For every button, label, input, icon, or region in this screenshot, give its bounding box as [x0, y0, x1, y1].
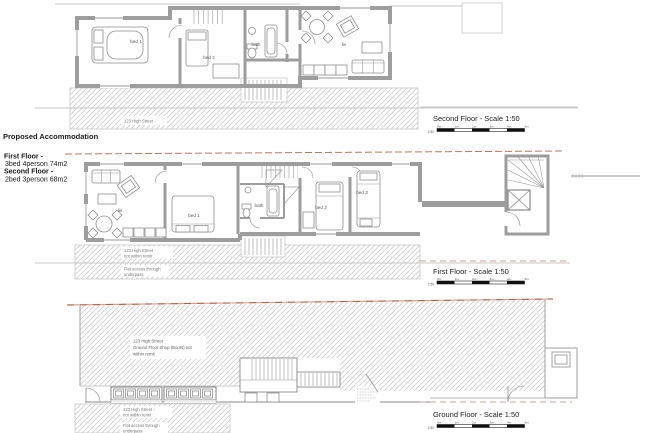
scale-tick-label: 4m [507, 421, 512, 425]
door-arc [86, 388, 100, 402]
scale-ratio-label: 1:50 [428, 283, 435, 287]
street-note: 123 High Street - [123, 407, 155, 412]
second-floor-scale: Second Floor - Scale 1:50 1:50 0m 1m 2m … [420, 107, 578, 134]
scale-tick-label: 5m [525, 421, 530, 425]
room-label-bed1: bed 1 [188, 213, 200, 218]
ground-floor-scale: Ground Floor - Scale 1:50 1:50 0m 1m 2m … [420, 402, 572, 430]
scale-tick-label: 1m [455, 277, 460, 281]
first-floor-label: First Floor - [4, 154, 44, 161]
room-label-liv: liv [342, 42, 347, 47]
bin-store-group [111, 387, 162, 404]
scale-bar [437, 129, 525, 132]
ground-stairs [240, 358, 340, 402]
shop-note-1: 123 High Street [133, 339, 164, 344]
living-furniture [88, 170, 166, 238]
scale-tick-label: 2m [472, 125, 477, 129]
stairwell [241, 78, 287, 102]
first-floor-spec: 3bed 4person 74m2 [5, 161, 67, 168]
stairwell [241, 236, 285, 257]
scale-bar [437, 425, 525, 428]
scale-tick-label: 4m [507, 277, 512, 281]
right-annex [545, 348, 577, 398]
second-floor-spec: 2bed 3person 68m2 [5, 177, 67, 184]
room-label-bath: bath [252, 42, 261, 47]
scale-tick-label: 2m [472, 421, 477, 425]
site-boundary-line [65, 151, 565, 154]
stair-arrow [284, 187, 299, 204]
plan-title: Second Floor - Scale 1:50 [433, 114, 520, 123]
drawing-sheet: 123 High Street - [0, 0, 650, 433]
bed1-furniture [92, 27, 148, 63]
bed2-furniture [186, 30, 239, 78]
shop-note-2: Ground Floor Shop (Boots) not [133, 345, 193, 350]
access-note-1: Flat access through [123, 423, 160, 428]
room-label-liv: liv [118, 208, 123, 213]
first-floor-plan: 123 High Street - not within remit Flat … [35, 151, 640, 279]
shop-note-3: within remit [133, 352, 156, 357]
scale-bar [437, 281, 525, 284]
room-label-bed3: bed 3 [356, 190, 368, 195]
bin-store-group [164, 387, 216, 404]
bathroom-fixtures [242, 186, 279, 218]
room-label-bath: bath [255, 203, 264, 208]
access-note-2: underpass [124, 272, 144, 277]
plan-title: First Floor - Scale 1:50 [433, 267, 509, 276]
bed3-furniture [357, 171, 380, 227]
shop-hatch-region [80, 358, 240, 386]
scale-tick-label: 1m [455, 125, 460, 129]
remit-note: not within remit [124, 254, 153, 259]
scale-tick-label: 0m [437, 421, 442, 425]
stairs-icon [194, 9, 222, 24]
street-note: 123 High Street - [124, 119, 156, 124]
remit-note: not within remit [123, 413, 152, 418]
first-floor-scale: First Floor - Scale 1:50 1:50 0m 1m 2m 3… [420, 261, 570, 287]
scale-tick-label: 2m [472, 277, 477, 281]
plan-title: Ground Floor - Scale 1:50 [433, 410, 519, 419]
scale-tick-label: 0m [437, 125, 442, 129]
room-label-bed1: bed 1 [130, 39, 142, 44]
scale-tick-label: 5m [525, 125, 530, 129]
floor-plan-drawing: 123 High Street - [0, 0, 650, 433]
room-label-bed2: bed 2 [315, 205, 327, 210]
scale-ratio-label: 1:50 [428, 130, 435, 134]
notes-heading: Proposed Accommodation [3, 132, 99, 141]
scale-tick-label: 3m [490, 277, 495, 281]
scale-tick-label: 3m [490, 421, 495, 425]
access-note-2: underpass [123, 429, 143, 433]
stairs-icon [262, 165, 298, 178]
reference-line [571, 174, 640, 179]
scale-tick-label: 4m [507, 125, 512, 129]
scale-tick-label: 5m [525, 277, 530, 281]
corridor-wall [422, 201, 508, 207]
scale-tick-label: 3m [490, 125, 495, 129]
scale-tick-label: 1m [455, 421, 460, 425]
scale-ratio-label: 1:50 [428, 426, 435, 430]
scale-tick-label: 0m [437, 277, 442, 281]
neighbour-outline [462, 3, 502, 33]
room-label-bed2: bed 2 [203, 55, 215, 60]
street-note: 123 High Street - [124, 248, 156, 253]
second-floor-label: Second Floor - [4, 169, 54, 176]
second-floor-plan: 123 High Street - [35, 3, 578, 129]
access-note-1: Flat access through [124, 267, 161, 272]
stair-block [504, 155, 548, 234]
